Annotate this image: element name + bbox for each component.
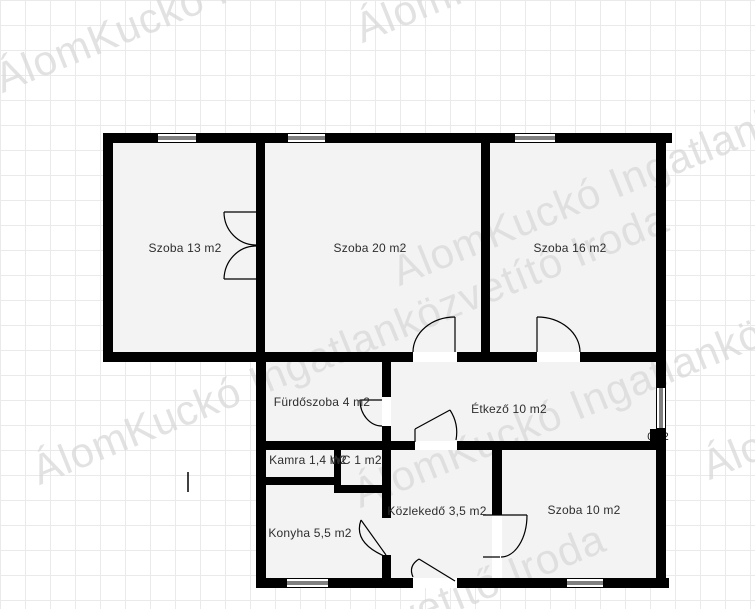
room-label-szoba10: Szoba 10 m2 [548, 503, 621, 517]
door-arc [411, 559, 419, 577]
door-leaf [419, 559, 455, 581]
door-leaf [415, 410, 450, 429]
room-label-konyha: Konyha 5,5 m2 [268, 526, 351, 540]
room-label-wc: WC 1 m2 [330, 453, 381, 467]
door-arc [224, 246, 256, 279]
door-symbols-layer [0, 0, 755, 609]
door-arc [537, 317, 580, 352]
room-label-kozlekedo: Közlekedő 3,5 m2 [387, 504, 486, 518]
room-label-szoba13: Szoba 13 m2 [149, 241, 222, 255]
room-label-etkezo: Étkező 10 m2 [471, 402, 547, 416]
door-arc [413, 317, 455, 352]
door-arc [359, 520, 384, 556]
floorplan-canvas: ÁlomKuckó Ingatlanközvetítő Iroda ÁlomKu… [0, 0, 755, 609]
room-label-szoba20: Szoba 20 m2 [334, 241, 407, 255]
door-arc [224, 212, 256, 245]
door-arc [450, 410, 457, 440]
room-label-furdoszoba: Fürdőszoba 4 m2 [274, 395, 370, 409]
room-label-szoba16: Szoba 16 m2 [534, 241, 607, 255]
door-arc [501, 515, 527, 557]
